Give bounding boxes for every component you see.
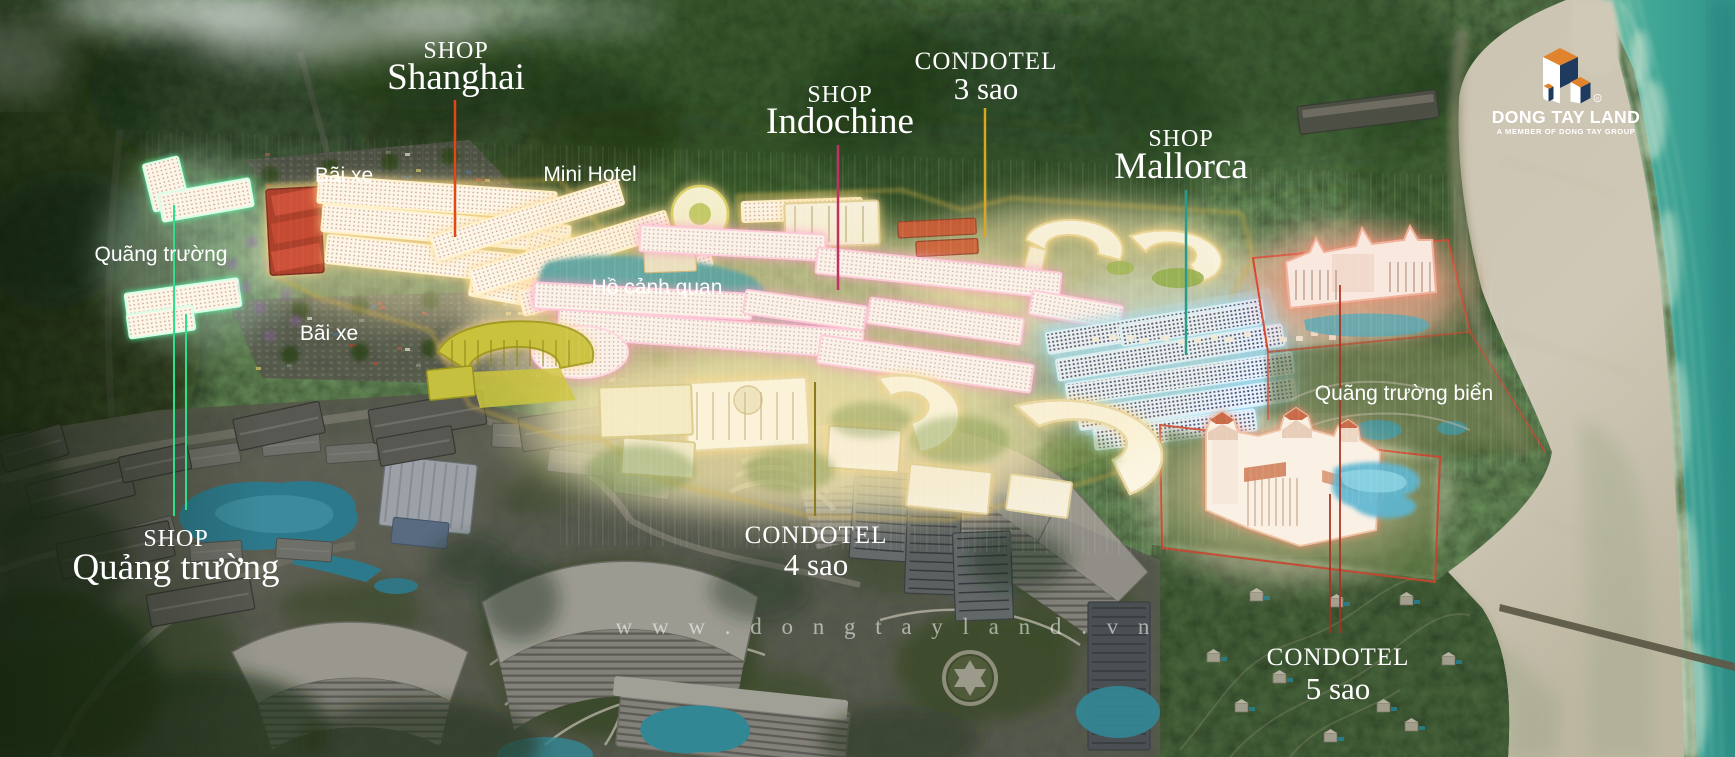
svg-text:w w w . d o n g t a y l a n d: w w w . d o n g t a y l a n d . v n <box>616 614 1157 639</box>
svg-text:Bãi xe: Bãi xe <box>300 322 358 345</box>
svg-text:Indochine: Indochine <box>766 101 914 142</box>
svg-text:4 sao: 4 sao <box>784 547 849 582</box>
svg-text:CONDOTEL: CONDOTEL <box>745 522 888 549</box>
svg-text:Shanghai: Shanghai <box>387 57 525 98</box>
svg-text:DONG TAY LAND: DONG TAY LAND <box>1492 107 1641 127</box>
svg-text:Bãi xe: Bãi xe <box>315 164 373 187</box>
svg-text:Quãng trường biển: Quãng trường biển <box>1315 382 1493 405</box>
svg-text:3 sao: 3 sao <box>954 71 1019 106</box>
svg-text:Quãng trường: Quãng trường <box>95 243 228 266</box>
svg-text:Hồ cảnh quan: Hồ cảnh quan <box>592 276 723 299</box>
svg-text:Mallorca: Mallorca <box>1114 146 1248 187</box>
svg-text:R: R <box>1596 96 1600 102</box>
svg-text:Mini Hotel: Mini Hotel <box>543 163 636 186</box>
svg-text:A MEMBER OF DONG TAY GROUP: A MEMBER OF DONG TAY GROUP <box>1497 127 1636 136</box>
svg-text:Quảng trường: Quảng trường <box>72 547 279 588</box>
svg-text:5 sao: 5 sao <box>1306 671 1371 706</box>
svg-text:CONDOTEL: CONDOTEL <box>1267 644 1410 671</box>
